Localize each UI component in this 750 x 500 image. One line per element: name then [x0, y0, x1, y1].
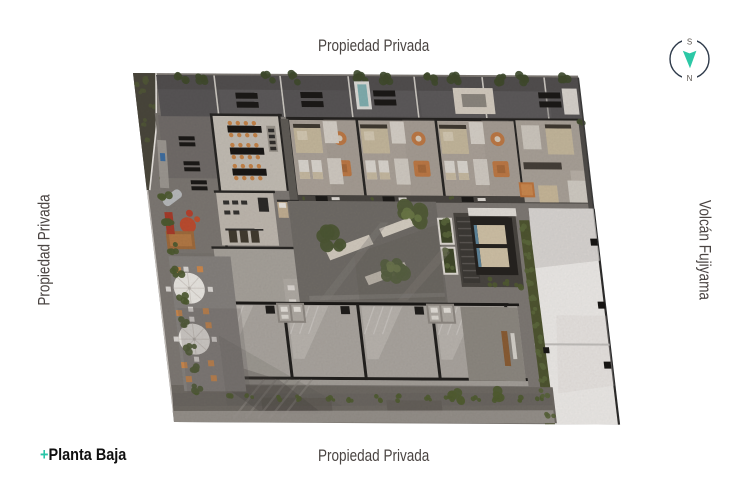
svg-text:N: N — [687, 74, 693, 83]
svg-text:S: S — [687, 38, 692, 47]
